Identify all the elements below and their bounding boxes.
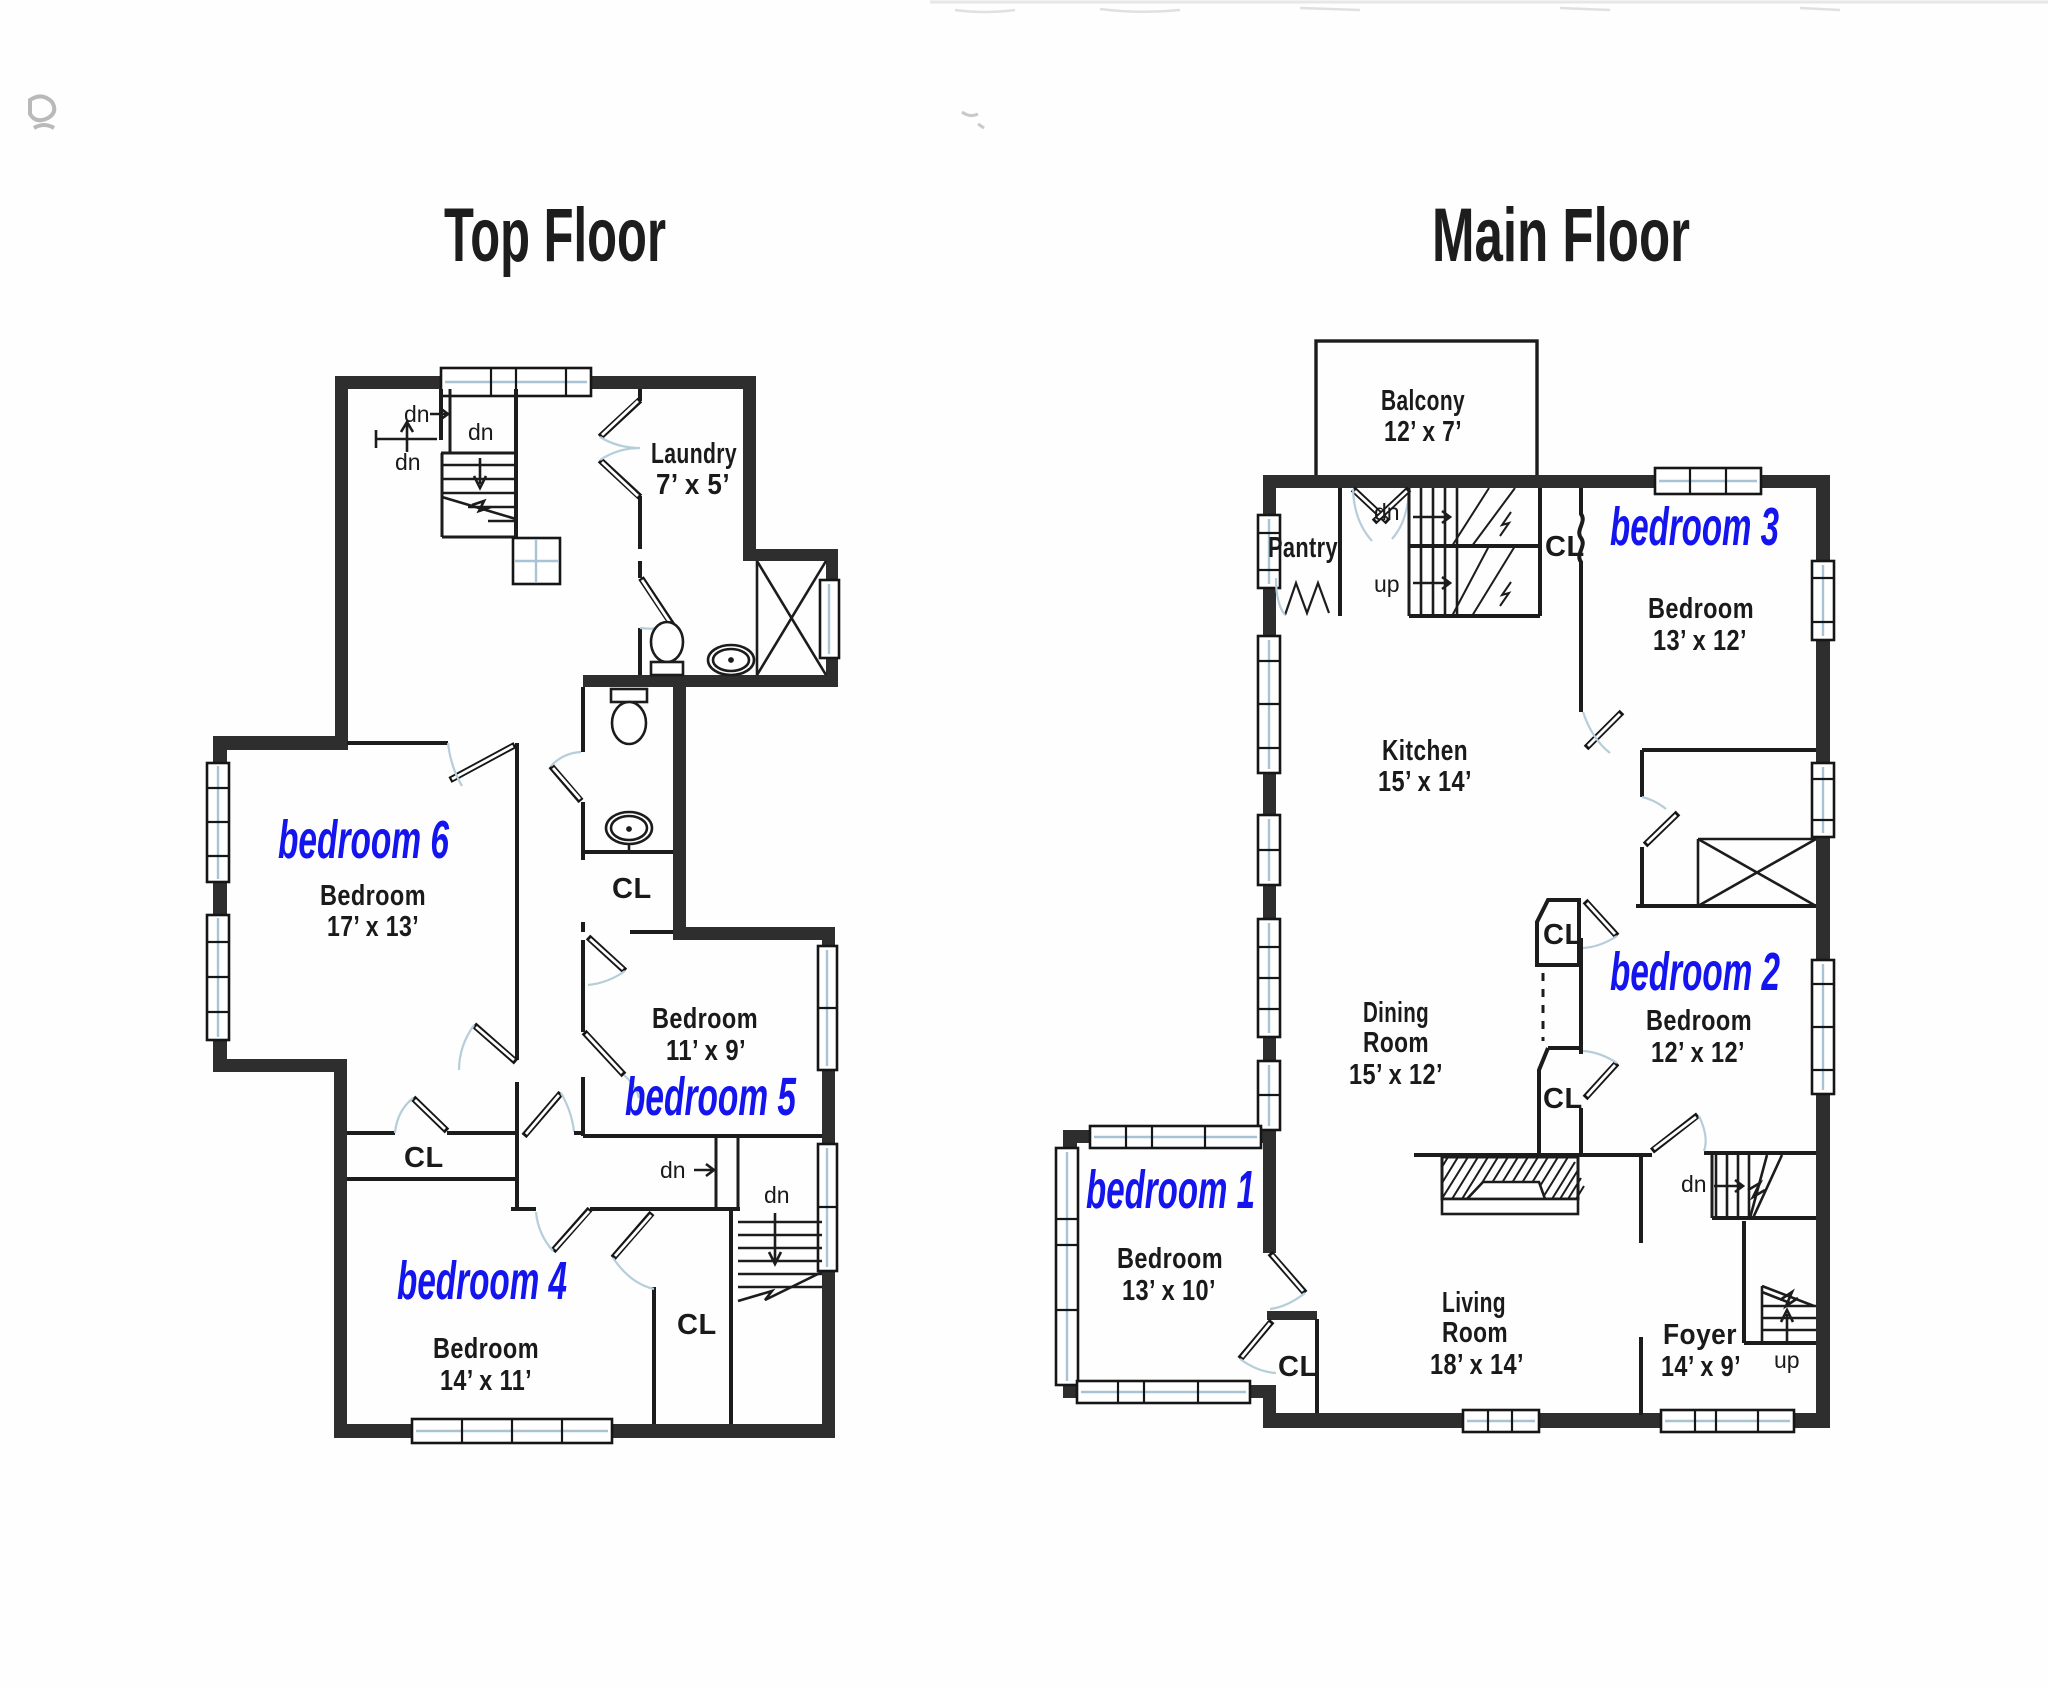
svg-text:18’ x 14’: 18’ x 14’	[1430, 1349, 1524, 1381]
svg-text:Bedroom: Bedroom	[433, 1333, 539, 1365]
svg-text:Dining: Dining	[1363, 997, 1429, 1029]
svg-text:Room: Room	[1363, 1027, 1429, 1059]
svg-text:dn: dn	[764, 1182, 790, 1208]
svg-text:Bedroom: Bedroom	[1117, 1243, 1223, 1275]
svg-text:17’ x 13’: 17’ x 13’	[327, 911, 419, 943]
svg-text:bedroom 5: bedroom 5	[625, 1067, 797, 1127]
svg-text:dn: dn	[468, 419, 494, 445]
svg-text:15’ x 12’: 15’ x 12’	[1349, 1059, 1443, 1091]
svg-text:dn: dn	[1374, 499, 1400, 525]
svg-text:CL: CL	[677, 1309, 717, 1341]
svg-text:CL: CL	[1278, 1351, 1318, 1383]
svg-text:Laundry: Laundry	[651, 438, 737, 470]
svg-text:up: up	[1774, 1347, 1800, 1373]
svg-text:CL: CL	[404, 1142, 444, 1174]
svg-text:dn: dn	[1681, 1171, 1707, 1197]
svg-text:dn: dn	[660, 1157, 686, 1183]
svg-text:13’ x 12’: 13’ x 12’	[1653, 625, 1747, 657]
svg-text:Bedroom: Bedroom	[652, 1003, 758, 1035]
svg-text:7’ x 5’: 7’ x 5’	[656, 469, 730, 501]
svg-text:Pantry: Pantry	[1268, 532, 1338, 564]
svg-text:14’ x 9’: 14’ x 9’	[1661, 1351, 1741, 1383]
svg-text:CL: CL	[1543, 919, 1583, 951]
svg-text:Bedroom: Bedroom	[1646, 1005, 1752, 1037]
svg-text:15’ x 14’: 15’ x 14’	[1378, 766, 1472, 798]
svg-text:Living: Living	[1442, 1287, 1506, 1319]
svg-text:bedroom 6: bedroom 6	[278, 810, 450, 870]
svg-text:12’ x 7’: 12’ x 7’	[1384, 416, 1462, 448]
svg-text:bedroom 2: bedroom 2	[1610, 942, 1780, 1002]
svg-text:CL: CL	[1543, 1083, 1583, 1115]
svg-text:Top Floor: Top Floor	[444, 193, 666, 278]
svg-text:bedroom 3: bedroom 3	[1610, 497, 1779, 557]
svg-text:14’ x 11’: 14’ x 11’	[440, 1365, 532, 1397]
svg-text:11’ x 9’: 11’ x 9’	[666, 1035, 746, 1067]
svg-text:dn: dn	[395, 449, 421, 475]
svg-text:12’ x 12’: 12’ x 12’	[1651, 1037, 1745, 1069]
svg-text:bedroom 1: bedroom 1	[1086, 1160, 1255, 1220]
svg-text:bedroom 4: bedroom 4	[397, 1251, 567, 1311]
svg-text:up: up	[1374, 571, 1400, 597]
svg-text:CL: CL	[612, 873, 652, 905]
svg-text:Kitchen: Kitchen	[1382, 735, 1468, 767]
svg-text:Room: Room	[1442, 1317, 1508, 1349]
svg-text:13’ x 10’: 13’ x 10’	[1122, 1275, 1216, 1307]
svg-text:Balcony: Balcony	[1381, 385, 1465, 417]
svg-text:Main Floor: Main Floor	[1432, 193, 1690, 278]
svg-text:Foyer: Foyer	[1663, 1319, 1737, 1351]
svg-text:Bedroom: Bedroom	[1648, 593, 1754, 625]
svg-text:Bedroom: Bedroom	[320, 880, 426, 912]
